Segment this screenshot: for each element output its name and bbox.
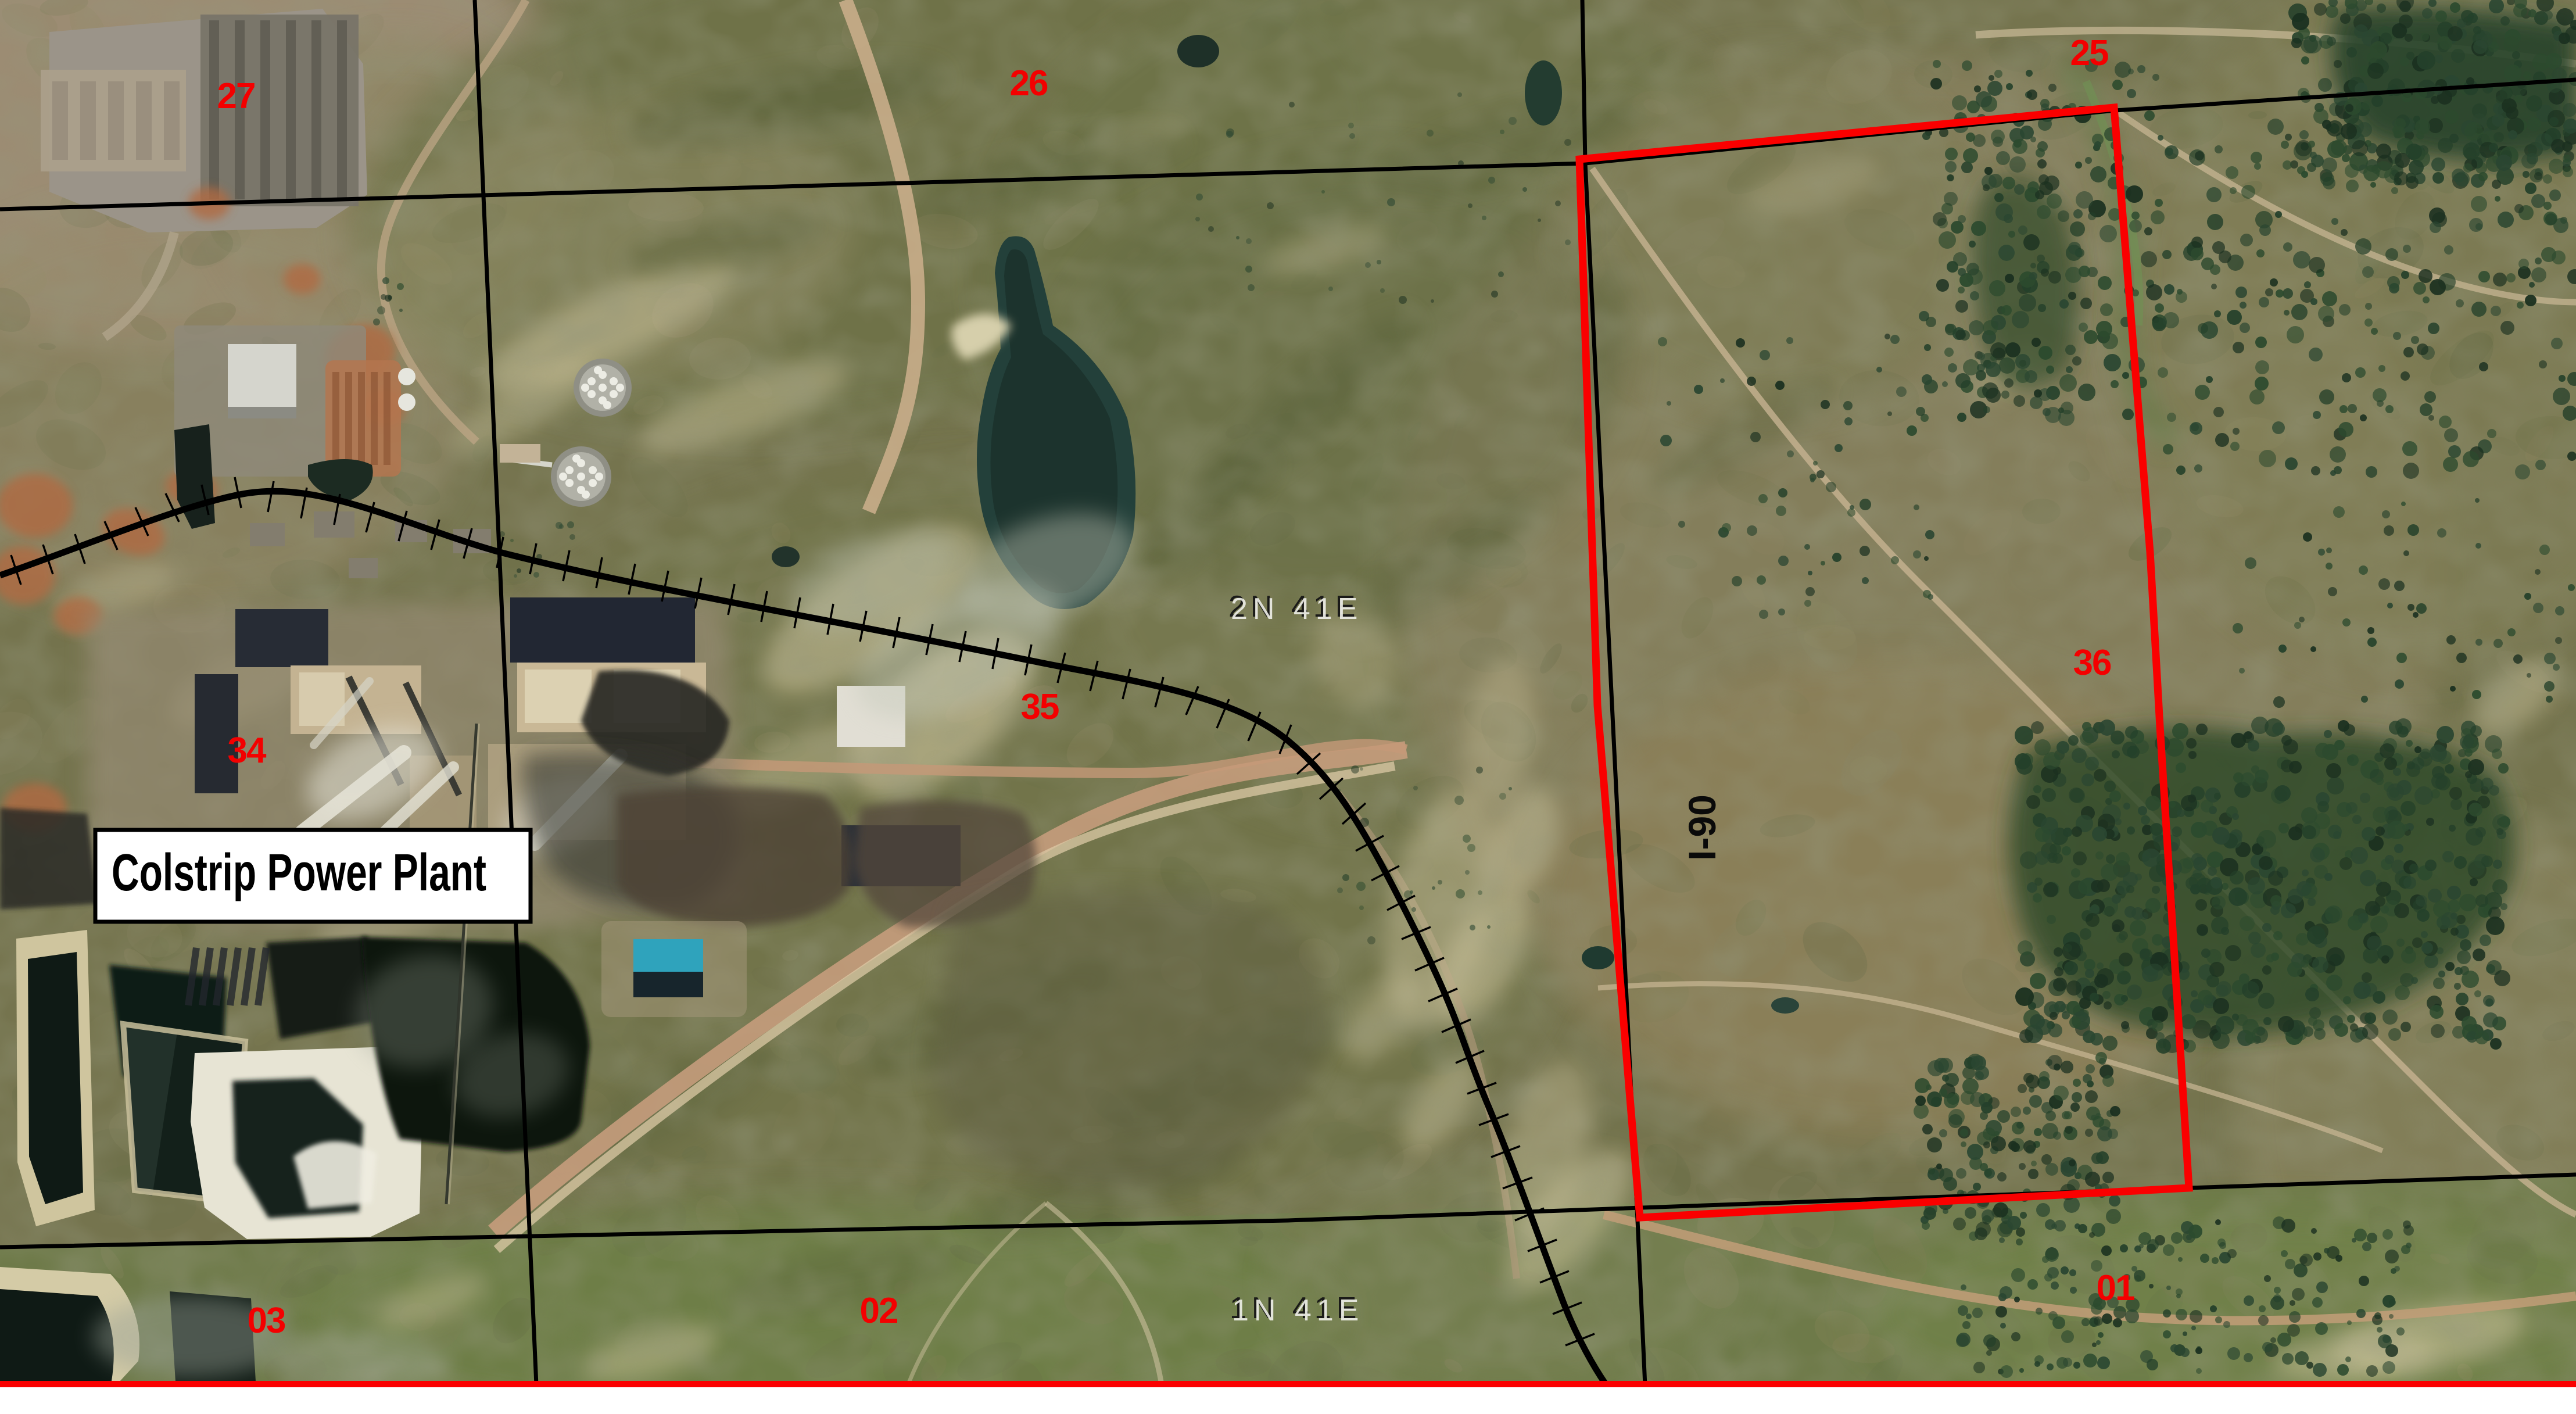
- svg-text:2N 41E: 2N 41E: [1231, 592, 1363, 626]
- svg-text:27: 27: [217, 76, 255, 116]
- svg-text:03: 03: [248, 1301, 285, 1341]
- svg-text:25: 25: [2070, 33, 2108, 73]
- svg-text:01: 01: [2097, 1268, 2134, 1308]
- svg-text:I-90: I-90: [1681, 794, 1724, 861]
- svg-text:35: 35: [1021, 687, 1059, 727]
- svg-text:36: 36: [2073, 643, 2111, 683]
- svg-text:26: 26: [1010, 63, 1048, 103]
- svg-text:02: 02: [860, 1291, 898, 1331]
- svg-text:1N 41E: 1N 41E: [1232, 1294, 1364, 1327]
- svg-text:34: 34: [228, 731, 267, 771]
- svg-text:Colstrip Power Plant: Colstrip Power Plant: [112, 844, 486, 902]
